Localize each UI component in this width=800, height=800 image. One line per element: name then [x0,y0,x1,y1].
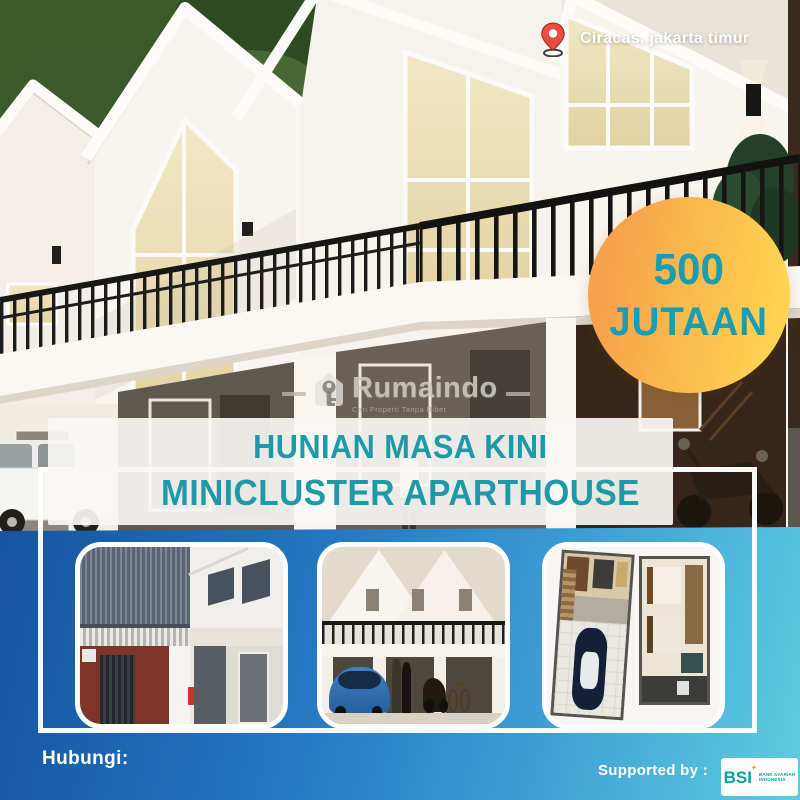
pillar [169,646,189,724]
title-block: HUNIAN MASA KINI MINICLUSTER APARTHOUSE [0,430,800,511]
bsi-sub-line2: INDONESIA [759,777,796,782]
kitchen-counter [642,676,707,702]
location-text: Ciracas, jakarta timur [580,30,749,48]
house-key-icon [314,372,344,416]
window-grille [100,655,136,724]
location-bar: Ciracas, jakarta timur [540,16,749,62]
bsi-star-icon: ✦ [751,765,757,772]
property-poster: Ciracas, jakarta timur 500 JUTAAN Rumain… [0,0,800,800]
price-unit: JUTAAN [610,302,769,342]
title-line-2: MINICLUSTER APARTHOUSE [161,474,640,512]
bed [647,567,681,604]
price-value: 500 [654,248,724,292]
window [459,589,472,610]
gray-door [194,646,226,724]
bsi-abbr: BSI✦ [724,769,752,786]
brand-watermark: Rumaindo Cari Properti Tanpa Ribet [282,372,532,416]
photo-floorplan [542,542,725,729]
maroon-wall [80,646,169,724]
person-silhouette [392,659,401,714]
bicycle [448,674,470,711]
carport [553,620,626,717]
supported-by-label: Supported by : [598,762,708,779]
photo-construction [75,542,288,729]
wall-lamp [52,246,61,264]
bsi-logo: BSI✦ BANK SYARIAH INDONESIA [721,758,798,796]
right-wall [226,646,283,724]
door-opening [238,652,269,724]
balcony-railing [322,621,505,644]
contact-label: Hubungi: [42,748,129,770]
motorbike-wheel [424,699,433,713]
brand-name: Rumaindo [352,374,498,403]
railing-slats [80,628,190,646]
title-line-1: HUNIAN MASA KINI [253,430,547,465]
bed [647,616,681,653]
parked-car [571,627,609,711]
person-silhouette [402,662,411,713]
watermark-dash-left [282,392,306,396]
corrugated-wall [80,547,190,628]
bathroom [681,653,703,673]
floorplan-ground [550,550,634,721]
balcony-beam [322,644,505,656]
price-badge: 500 JUTAAN [588,197,790,393]
white-facade [190,547,283,628]
map-pin-icon [540,21,566,57]
ac-unit [82,649,96,661]
wardrobe [685,565,703,645]
fire-extinguisher [188,687,194,706]
window [412,589,425,610]
watermark-dash-right [506,392,530,396]
brand-tagline: Cari Properti Tanpa Ribet [352,406,498,414]
blue-car [329,667,389,713]
wall-lamp [746,84,761,116]
ground-level [80,646,283,724]
pavement [322,713,505,724]
photo-exterior [317,542,510,729]
floorplan-upper [639,556,710,705]
window [366,589,379,610]
